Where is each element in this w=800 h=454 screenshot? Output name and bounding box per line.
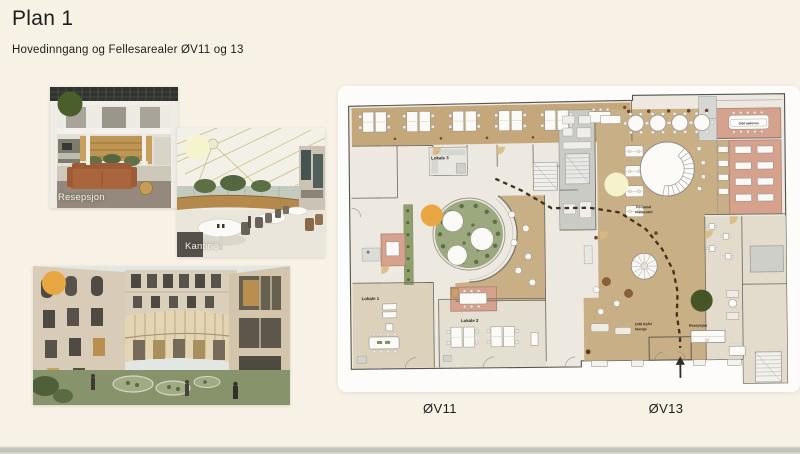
plan-resepsjon-label: Resepsjon	[689, 324, 707, 328]
slide-plan-1: { "slide": { "title": "Plan 1", "subtitl…	[0, 0, 800, 454]
building-label-ov13: ØV13	[624, 401, 708, 416]
lokale3-label: Lokale 3	[431, 155, 449, 160]
courtyard-ground	[33, 370, 290, 405]
lokale2-label: Lokale 2	[461, 318, 479, 323]
floorplan-panel: Odd møterom	[338, 86, 800, 392]
photo-resepsjon: Resepsjon	[50, 87, 178, 208]
page-title: Plan 1	[12, 7, 73, 31]
lokale1-label: Lokale 1	[362, 296, 380, 301]
floorplan-drawing: Odd møterom	[338, 86, 800, 392]
photo-kantine: Kantine	[177, 128, 325, 257]
photo-courtyard	[33, 266, 290, 405]
kafe-label-line2: lounge	[635, 327, 647, 331]
stair-bottom-right	[755, 352, 781, 382]
curved-glass-gallery	[125, 310, 229, 362]
resepsjon-marker-dot	[58, 92, 83, 117]
odd-moterom-label: Odd møterom	[739, 121, 760, 125]
resepsjon-caption: Resepsjon	[58, 192, 105, 203]
restaurant-label-line2: restaurant	[635, 210, 653, 214]
boh-stair	[565, 154, 589, 184]
building-label-ov11: ØV11	[398, 401, 482, 416]
kafe-label-line1: Odd Kafe/	[635, 322, 652, 326]
restaurant-label-line1: Personal	[636, 205, 651, 209]
courtyard-photo-art	[33, 266, 290, 405]
page-subtitle: Hovedinngang og Fellesarealer ØV11 og 13	[12, 44, 244, 56]
courtyard-marker-dot	[42, 271, 66, 295]
kantine-photo-art	[177, 128, 325, 257]
kantine-caption: Kantine	[185, 241, 219, 252]
stair-core	[533, 162, 557, 190]
kantine-marker-dot	[185, 135, 210, 160]
resepsjon-photo-art	[50, 87, 178, 208]
horizontal-scrollbar[interactable]	[0, 446, 800, 454]
reception-bar	[50, 134, 178, 168]
